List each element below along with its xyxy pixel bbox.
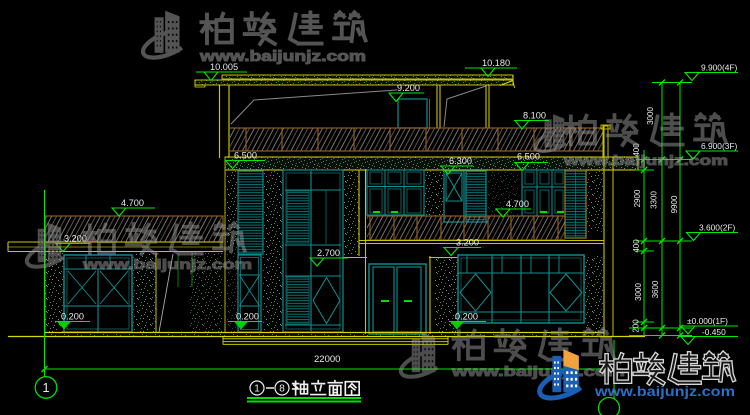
svg-text:1: 1 (254, 384, 260, 395)
svg-text:www.baijunjz.com: www.baijunjz.com (199, 48, 366, 65)
svg-text:6.900(3F): 6.900(3F) (701, 141, 738, 151)
svg-text:4.700: 4.700 (506, 199, 529, 209)
svg-text:0.200: 0.200 (61, 312, 84, 322)
svg-text:8.100: 8.100 (523, 111, 546, 121)
svg-text:0.200: 0.200 (236, 312, 259, 322)
svg-text:2.700: 2.700 (317, 248, 340, 258)
svg-text:9.200: 9.200 (397, 83, 420, 93)
svg-text:6.500: 6.500 (517, 152, 540, 162)
svg-text:www.baijunjz.com: www.baijunjz.com (451, 363, 625, 379)
svg-text:3.600(2F): 3.600(2F) (699, 223, 736, 233)
svg-text:1: 1 (42, 380, 49, 395)
svg-text:6.500: 6.500 (234, 151, 257, 161)
svg-text:2900: 2900 (633, 189, 642, 207)
svg-text:www.baijunjz.com: www.baijunjz.com (563, 152, 728, 168)
svg-text:3000: 3000 (646, 107, 655, 125)
svg-text:200: 200 (632, 319, 641, 333)
svg-text:0.200: 0.200 (455, 312, 478, 322)
svg-text:3.200: 3.200 (456, 238, 479, 248)
svg-text:3600: 3600 (651, 280, 660, 298)
svg-text:8: 8 (279, 384, 285, 395)
svg-text:3300: 3300 (650, 191, 659, 209)
svg-text:22000: 22000 (314, 354, 340, 365)
svg-text:4.700: 4.700 (121, 198, 144, 208)
svg-text:400: 400 (632, 239, 641, 253)
svg-text:6.300: 6.300 (449, 156, 472, 166)
svg-text:10.180: 10.180 (482, 58, 510, 68)
svg-text:9900: 9900 (670, 195, 679, 213)
svg-text:www.baijunjz.com: www.baijunjz.com (82, 256, 252, 272)
svg-text:-0.450: -0.450 (702, 327, 726, 337)
svg-text:www.baijunjz.com: www.baijunjz.com (594, 384, 735, 399)
svg-text:9.900(4F): 9.900(4F) (701, 63, 738, 73)
svg-text:±0.000(1F): ±0.000(1F) (687, 316, 728, 326)
svg-text:3000: 3000 (634, 283, 643, 301)
